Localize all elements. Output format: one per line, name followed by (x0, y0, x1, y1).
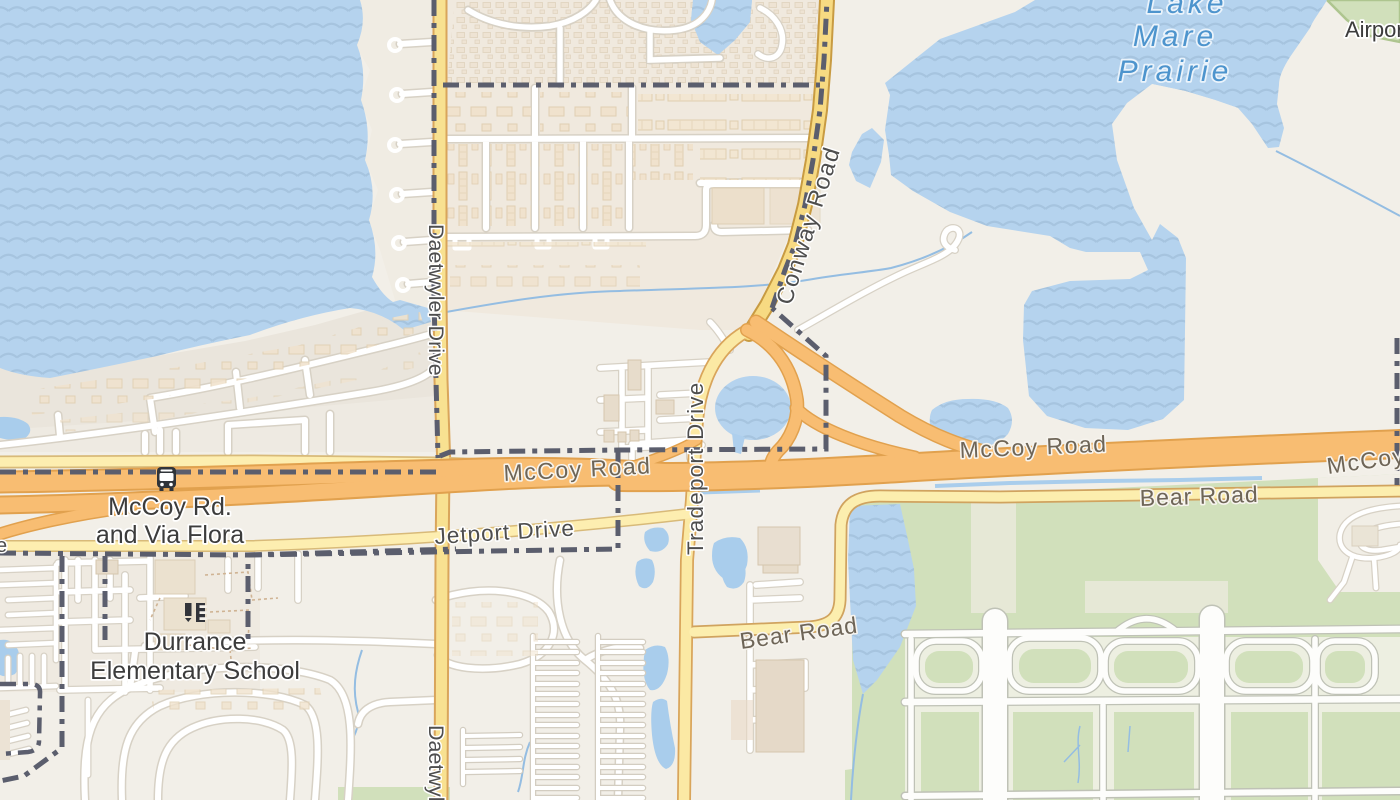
svg-text:Durrance: Durrance (144, 628, 247, 656)
svg-text:Tradeport Drive: Tradeport Drive (683, 382, 708, 555)
svg-text:e: e (0, 535, 7, 557)
svg-text:Elementary School: Elementary School (90, 657, 300, 685)
svg-text:Airport: Airport (1345, 17, 1400, 42)
svg-text:Daetwyler Drive: Daetwyler Drive (424, 725, 448, 800)
svg-text:Prairie: Prairie (1118, 55, 1233, 88)
svg-text:Mare: Mare (1133, 20, 1217, 53)
svg-text:Bear Road: Bear Road (1139, 481, 1259, 511)
svg-text:Lake: Lake (1146, 0, 1227, 20)
svg-text:Daetwyler Drive: Daetwyler Drive (424, 224, 448, 376)
svg-text:and Via Flora: and Via Flora (96, 521, 244, 549)
svg-text:McCoy Rd.: McCoy Rd. (108, 493, 232, 521)
